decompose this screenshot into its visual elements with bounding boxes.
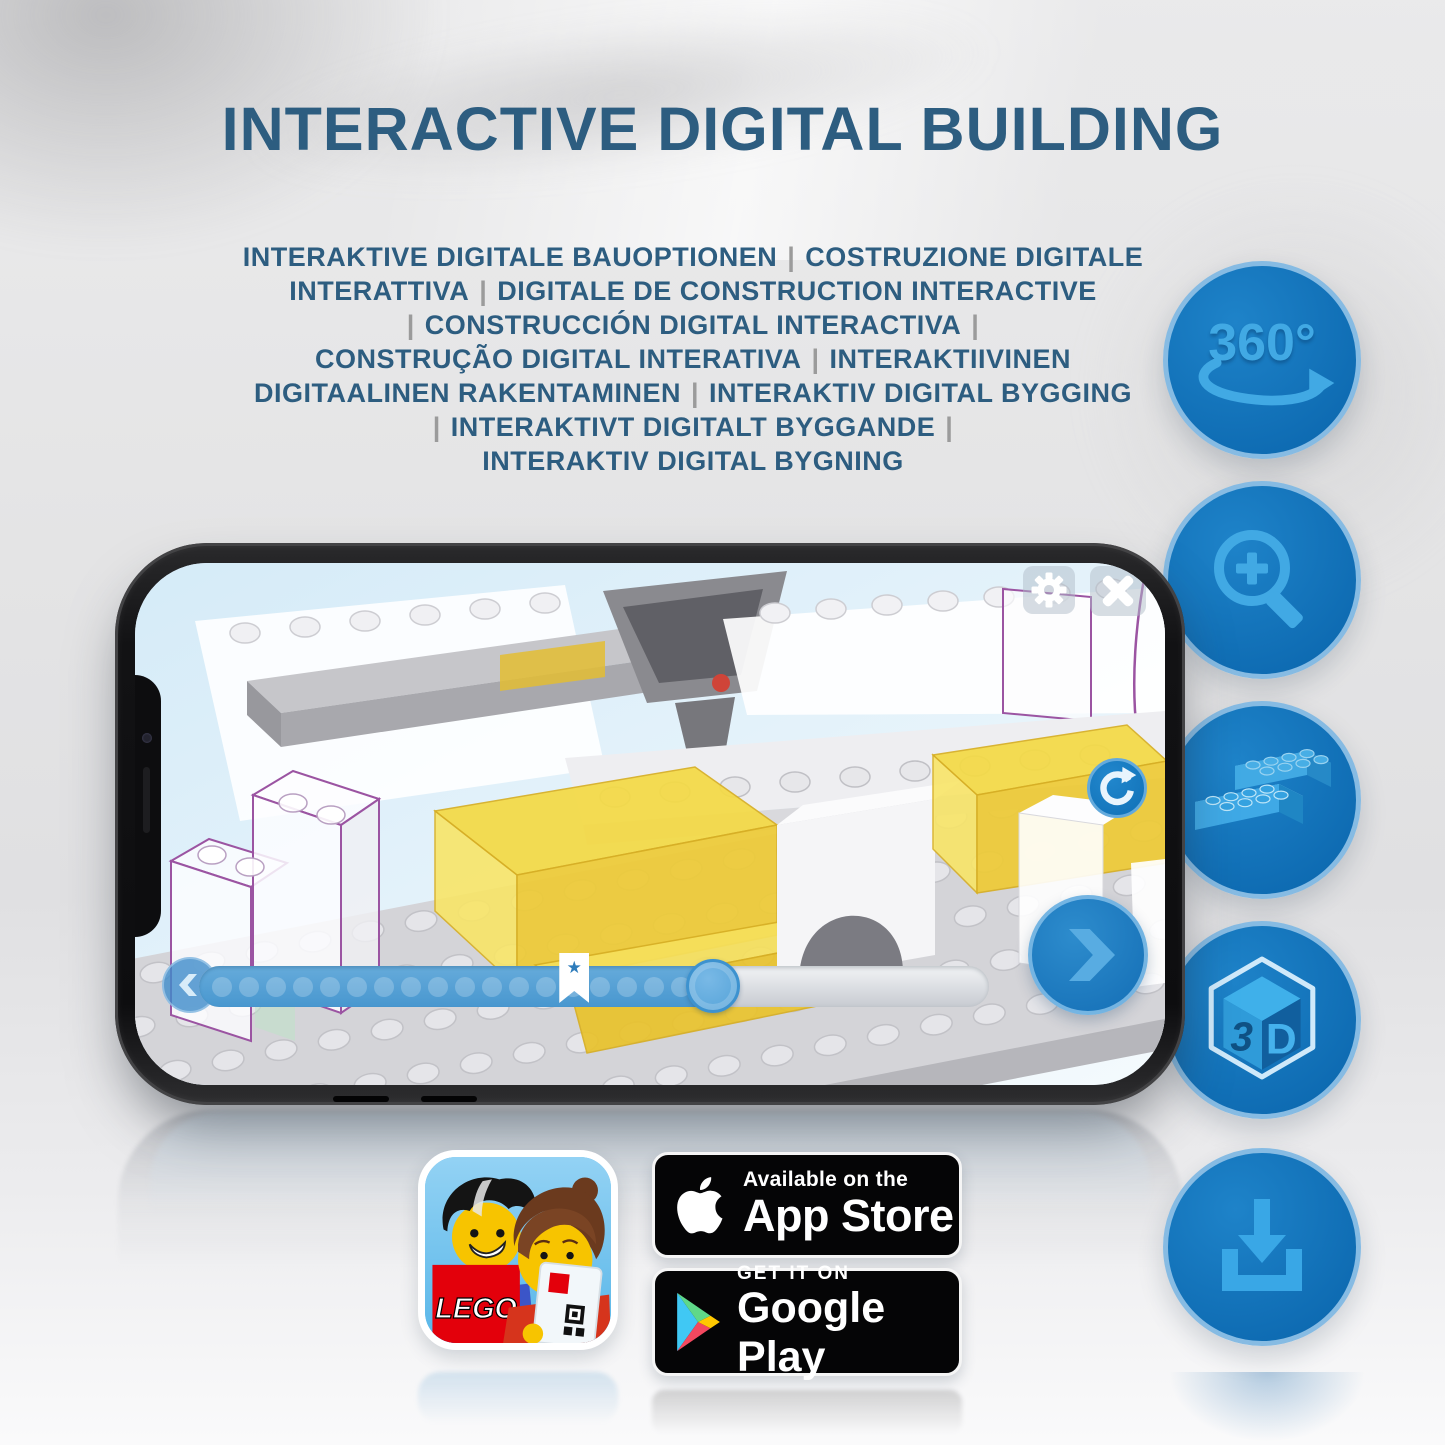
magnifier-plus-icon bbox=[1200, 518, 1324, 642]
google-play-badge[interactable]: GET IT ON Google Play bbox=[652, 1268, 962, 1376]
feature-zoom-icon bbox=[1163, 481, 1361, 679]
apple-icon bbox=[675, 1173, 727, 1237]
lego-logo: LEGO bbox=[435, 1293, 517, 1325]
marketing-page: INTERACTIVE DIGITAL BUILDING INTERAKTIVE… bbox=[0, 0, 1445, 1445]
feature-3d-icon: 3 D bbox=[1163, 921, 1361, 1119]
phone-notch bbox=[135, 675, 161, 937]
phone-volume-button bbox=[333, 1096, 389, 1102]
gear-icon bbox=[1027, 570, 1071, 610]
lego-app-icon[interactable]: LEGO bbox=[418, 1150, 618, 1350]
feature-download-icon bbox=[1163, 1148, 1361, 1346]
lego-bricks-icon bbox=[1187, 740, 1337, 860]
phone-volume-button bbox=[421, 1096, 477, 1102]
google-play-icon bbox=[673, 1290, 723, 1354]
app-screen bbox=[135, 563, 1165, 1085]
next-step-button[interactable] bbox=[1028, 895, 1148, 1015]
build-progress-bar[interactable] bbox=[199, 966, 989, 1007]
feature-360-rotation-icon: 360° bbox=[1163, 261, 1361, 459]
google-play-tagline: GET IT ON bbox=[737, 1263, 959, 1285]
lego-app-artwork: LEGO bbox=[425, 1157, 611, 1343]
icon-reflection bbox=[1168, 1372, 1366, 1442]
rotate-icon bbox=[1095, 766, 1139, 810]
app-store-name: App Store bbox=[743, 1190, 954, 1242]
settings-button[interactable] bbox=[1023, 566, 1075, 614]
app-icon-reflection bbox=[418, 1372, 618, 1424]
chevron-right-icon bbox=[1069, 929, 1115, 981]
badge-reflection bbox=[652, 1390, 962, 1434]
download-arrow-icon bbox=[1202, 1191, 1322, 1303]
3d-cube-icon: 3 D bbox=[1201, 956, 1323, 1084]
subtitle-languages: INTERAKTIVE DIGITALE BAUOPTIONEN|COSTRUZ… bbox=[28, 240, 1358, 478]
cube-3-label: 3 bbox=[1230, 1013, 1253, 1059]
close-button[interactable] bbox=[1090, 566, 1146, 616]
phone-mockup bbox=[115, 543, 1185, 1105]
reset-rotation-button[interactable] bbox=[1087, 758, 1147, 818]
app-store-tagline: Available on the bbox=[743, 1168, 954, 1192]
screen-reflection bbox=[150, 1112, 1150, 1232]
page-title: INTERACTIVE DIGITAL BUILDING bbox=[0, 94, 1445, 164]
rotation-arrow-icon bbox=[1187, 357, 1337, 411]
google-play-name: Google Play bbox=[737, 1284, 959, 1382]
earpiece-speaker bbox=[143, 767, 150, 833]
progress-fill bbox=[199, 966, 713, 1007]
feature-brick-icon bbox=[1163, 701, 1361, 899]
app-store-badge[interactable]: Available on the App Store bbox=[652, 1152, 962, 1258]
chevron-left-icon bbox=[179, 974, 197, 996]
close-icon bbox=[1098, 571, 1138, 611]
front-camera bbox=[142, 733, 152, 743]
progress-thumb[interactable] bbox=[686, 959, 740, 1013]
cube-d-label: D bbox=[1266, 1016, 1297, 1064]
